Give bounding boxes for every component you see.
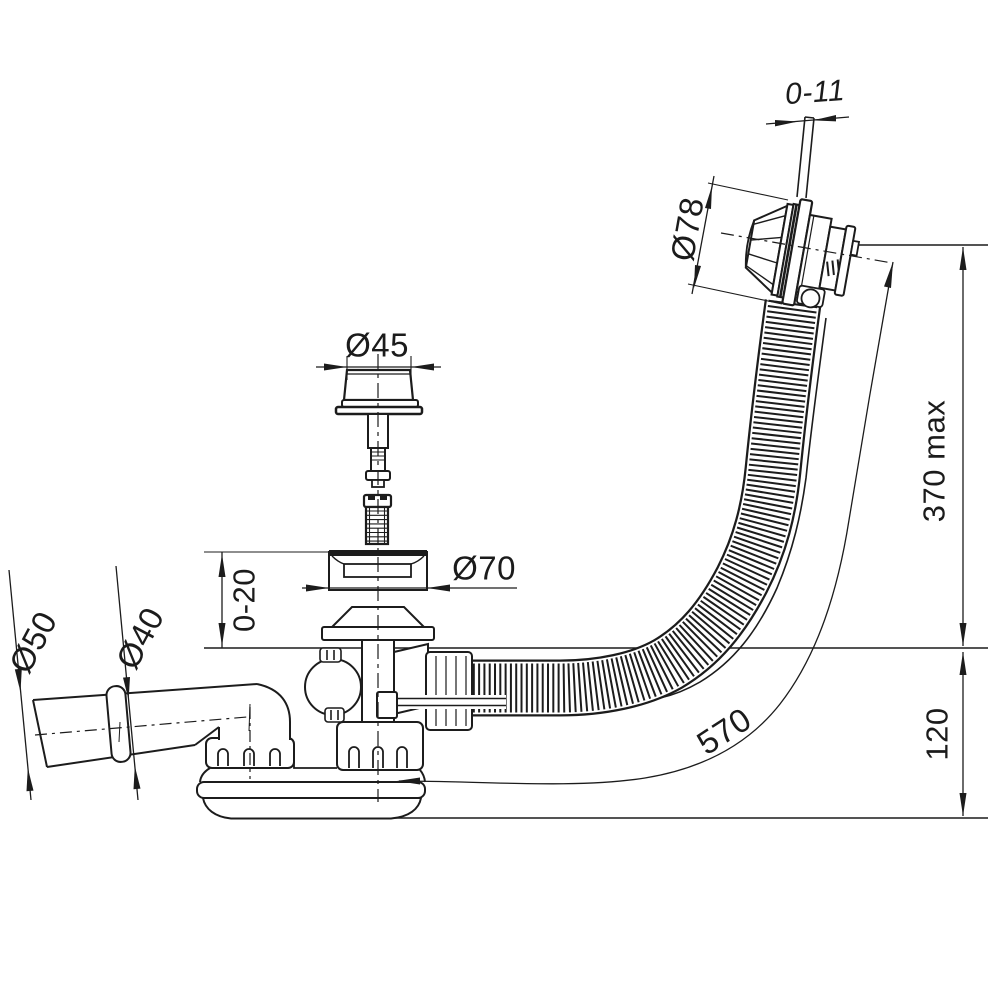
dim-label-flange-diameter: Ø70 bbox=[452, 552, 516, 585]
dim-overflow-height-370 bbox=[960, 247, 967, 646]
dim-label-overflow-height: 370 max bbox=[919, 400, 950, 522]
dim-flange-height-0-20 bbox=[204, 552, 330, 648]
dim-label-flange-height: 0-20 bbox=[229, 568, 260, 632]
dim-outlet-sleeve-50 bbox=[9, 570, 34, 800]
trap-screw-bottom bbox=[325, 708, 344, 722]
dim-label-trap-height: 120 bbox=[922, 707, 953, 760]
cup-shoulder-left bbox=[200, 768, 210, 782]
trap-cup-bowl bbox=[203, 798, 421, 819]
trap-cup-rim bbox=[197, 782, 425, 798]
cup-shoulder-right bbox=[420, 770, 425, 782]
technical-drawing-canvas: 0-11 Ø78 Ø45 Ø70 0-20 Ø50 Ø40 370 max 12… bbox=[0, 0, 1000, 1000]
cable-anchor-block bbox=[377, 692, 397, 718]
overflow-head bbox=[738, 191, 864, 314]
trap-crown-nut-center bbox=[337, 722, 423, 770]
plug-assembly bbox=[336, 370, 422, 544]
corrugated-hose bbox=[472, 303, 793, 688]
pull-rod bbox=[797, 117, 814, 198]
hose-union-nut bbox=[426, 652, 472, 730]
dim-trap-height-120 bbox=[960, 652, 967, 816]
trap-screw-top bbox=[320, 648, 341, 662]
trap-ball bbox=[305, 659, 361, 715]
trap-platform bbox=[294, 753, 337, 768]
reference-lines bbox=[204, 245, 988, 818]
dim-outlet-pipe-40 bbox=[116, 566, 141, 800]
drawing-vector-layer bbox=[0, 0, 1000, 1000]
dim-label-plug-diameter: Ø45 bbox=[345, 329, 409, 362]
dim-label-rod-adjust: 0-11 bbox=[784, 76, 846, 110]
